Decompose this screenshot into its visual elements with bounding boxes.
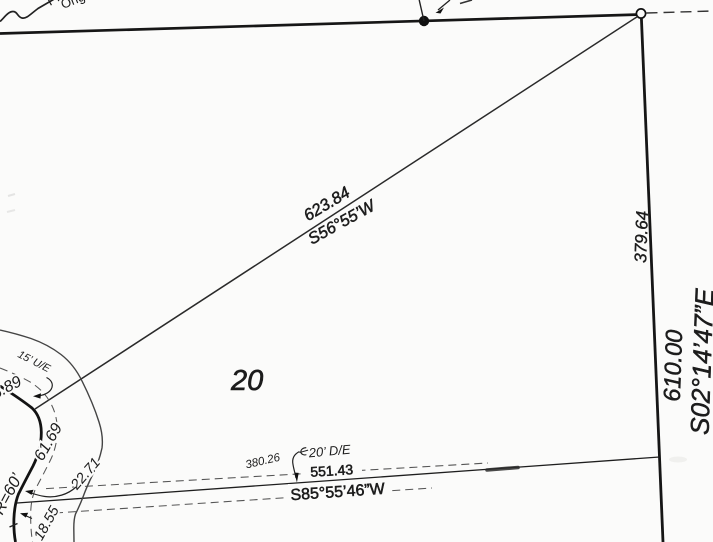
svg-text:610.00: 610.00 bbox=[659, 329, 687, 402]
svg-text:379.64: 379.64 bbox=[631, 210, 652, 263]
svg-text:20: 20 bbox=[230, 365, 263, 397]
svg-text:551.43: 551.43 bbox=[310, 461, 354, 480]
svg-text:S02°14’47”E: S02°14’47”E bbox=[684, 287, 713, 435]
